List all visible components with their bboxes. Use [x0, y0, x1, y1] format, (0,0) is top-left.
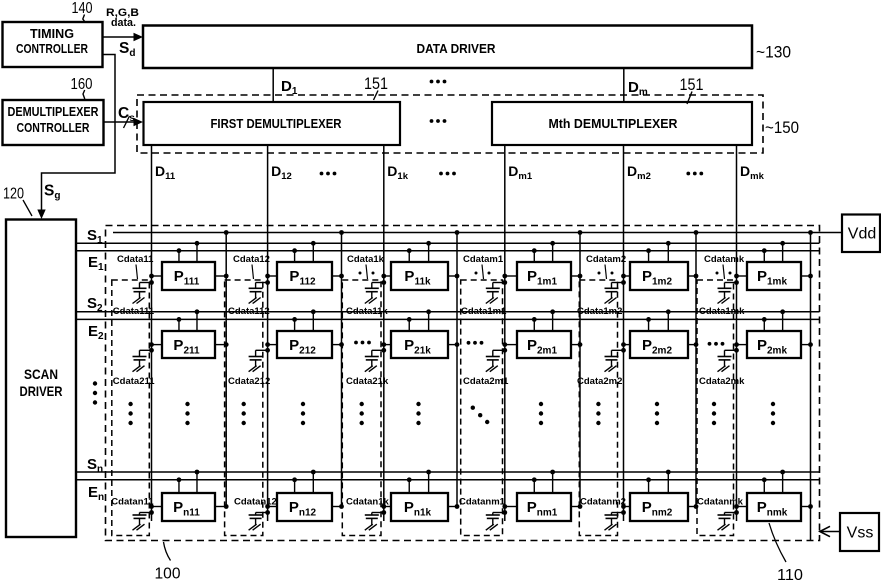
svg-text:Cdata111: Cdata111 — [113, 306, 155, 317]
svg-text:151: 151 — [680, 75, 704, 94]
svg-text:Cdatanm1: Cdatanm1 — [459, 497, 506, 508]
svg-text:Cdata112: Cdata112 — [228, 306, 270, 317]
svg-text:DEMULTIPLEXER: DEMULTIPLEXER — [8, 105, 99, 119]
svg-text:Cdata21k: Cdata21k — [346, 376, 389, 387]
svg-text:DRIVER: DRIVER — [20, 383, 63, 399]
svg-text:~130: ~130 — [756, 43, 791, 62]
svg-text:Cdata211: Cdata211 — [113, 376, 155, 387]
svg-text:Cdata2m2: Cdata2m2 — [577, 376, 622, 387]
svg-text:Cdata1m1: Cdata1m1 — [461, 306, 507, 317]
svg-text:100: 100 — [155, 566, 181, 581]
svg-text:TIMING: TIMING — [30, 27, 74, 41]
svg-text:SCAN: SCAN — [24, 366, 58, 382]
svg-text:Cdata2mk: Cdata2mk — [699, 376, 745, 387]
svg-text:Cdata1k: Cdata1k — [347, 254, 385, 265]
svg-text:151: 151 — [364, 74, 388, 93]
svg-text:data.: data. — [111, 17, 136, 29]
svg-text:Vss: Vss — [847, 525, 874, 542]
svg-text:CONTROLLER: CONTROLLER — [16, 42, 88, 56]
svg-text:Vdd: Vdd — [848, 226, 876, 243]
svg-text:~150: ~150 — [765, 118, 799, 137]
svg-text:CONTROLLER: CONTROLLER — [17, 121, 90, 135]
svg-text:Cdata2m1: Cdata2m1 — [463, 376, 509, 387]
svg-text:DATA DRIVER: DATA DRIVER — [417, 41, 497, 56]
svg-text:140: 140 — [72, 0, 93, 17]
svg-text:Mth DEMULTIPLEXER: Mth DEMULTIPLEXER — [549, 116, 679, 131]
svg-text:Cdatam1: Cdatam1 — [463, 254, 504, 265]
svg-text:Cdata11k: Cdata11k — [346, 306, 388, 317]
svg-text:Cdatan11: Cdatan11 — [111, 497, 154, 508]
svg-text:Cdata11: Cdata11 — [117, 254, 154, 265]
svg-text:FIRST DEMULTIPLEXER: FIRST DEMULTIPLEXER — [211, 116, 343, 131]
svg-text:120: 120 — [3, 186, 24, 203]
svg-text:110: 110 — [777, 567, 803, 581]
svg-text:Cdata1mk: Cdata1mk — [699, 306, 745, 317]
svg-text:Cdata12: Cdata12 — [233, 254, 270, 265]
svg-text:160: 160 — [71, 76, 93, 93]
svg-text:Cdatam2: Cdatam2 — [586, 254, 626, 265]
svg-text:Cdata212: Cdata212 — [228, 376, 270, 387]
svg-text:Cdatamk: Cdatamk — [704, 254, 745, 265]
svg-text:Cdata1m2: Cdata1m2 — [577, 306, 622, 317]
svg-text:Cdatanm2: Cdatanm2 — [580, 497, 626, 508]
